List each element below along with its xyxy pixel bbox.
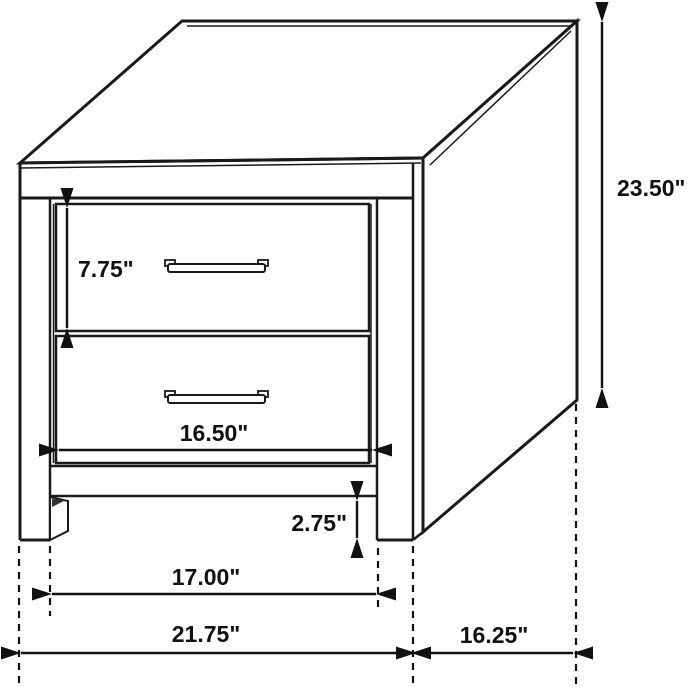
drawer-2-handle-bar bbox=[168, 395, 265, 403]
dimension-depth: 16.25" bbox=[416, 622, 573, 653]
nightstand-dimension-drawing: 23.50" 7.75" 16.50" 2.75" 17.00" 21.75" … bbox=[0, 0, 700, 700]
drawer-1-handle-bar bbox=[168, 264, 265, 272]
dimension-leg-inner-span: 17.00" bbox=[52, 564, 376, 594]
dimension-label-drawer-width: 16.50" bbox=[180, 420, 248, 446]
dimension-overall-width: 21.75" bbox=[21, 621, 411, 653]
dimension-label-depth: 16.25" bbox=[460, 622, 528, 648]
dimension-label-overall-width: 21.75" bbox=[172, 621, 240, 647]
dimension-label-leg-inner-span: 17.00" bbox=[172, 564, 240, 590]
dimension-label-top-drawer-height: 7.75" bbox=[78, 256, 134, 282]
dimension-overall-height: 23.50" bbox=[602, 22, 685, 388]
diagram-canvas: 23.50" 7.75" 16.50" 2.75" 17.00" 21.75" … bbox=[0, 0, 700, 700]
dimension-label-base-clearance: 2.75" bbox=[291, 510, 347, 536]
dimension-label-overall-height: 23.50" bbox=[617, 175, 685, 201]
right-leg-side-bottom-edge bbox=[413, 532, 423, 540]
